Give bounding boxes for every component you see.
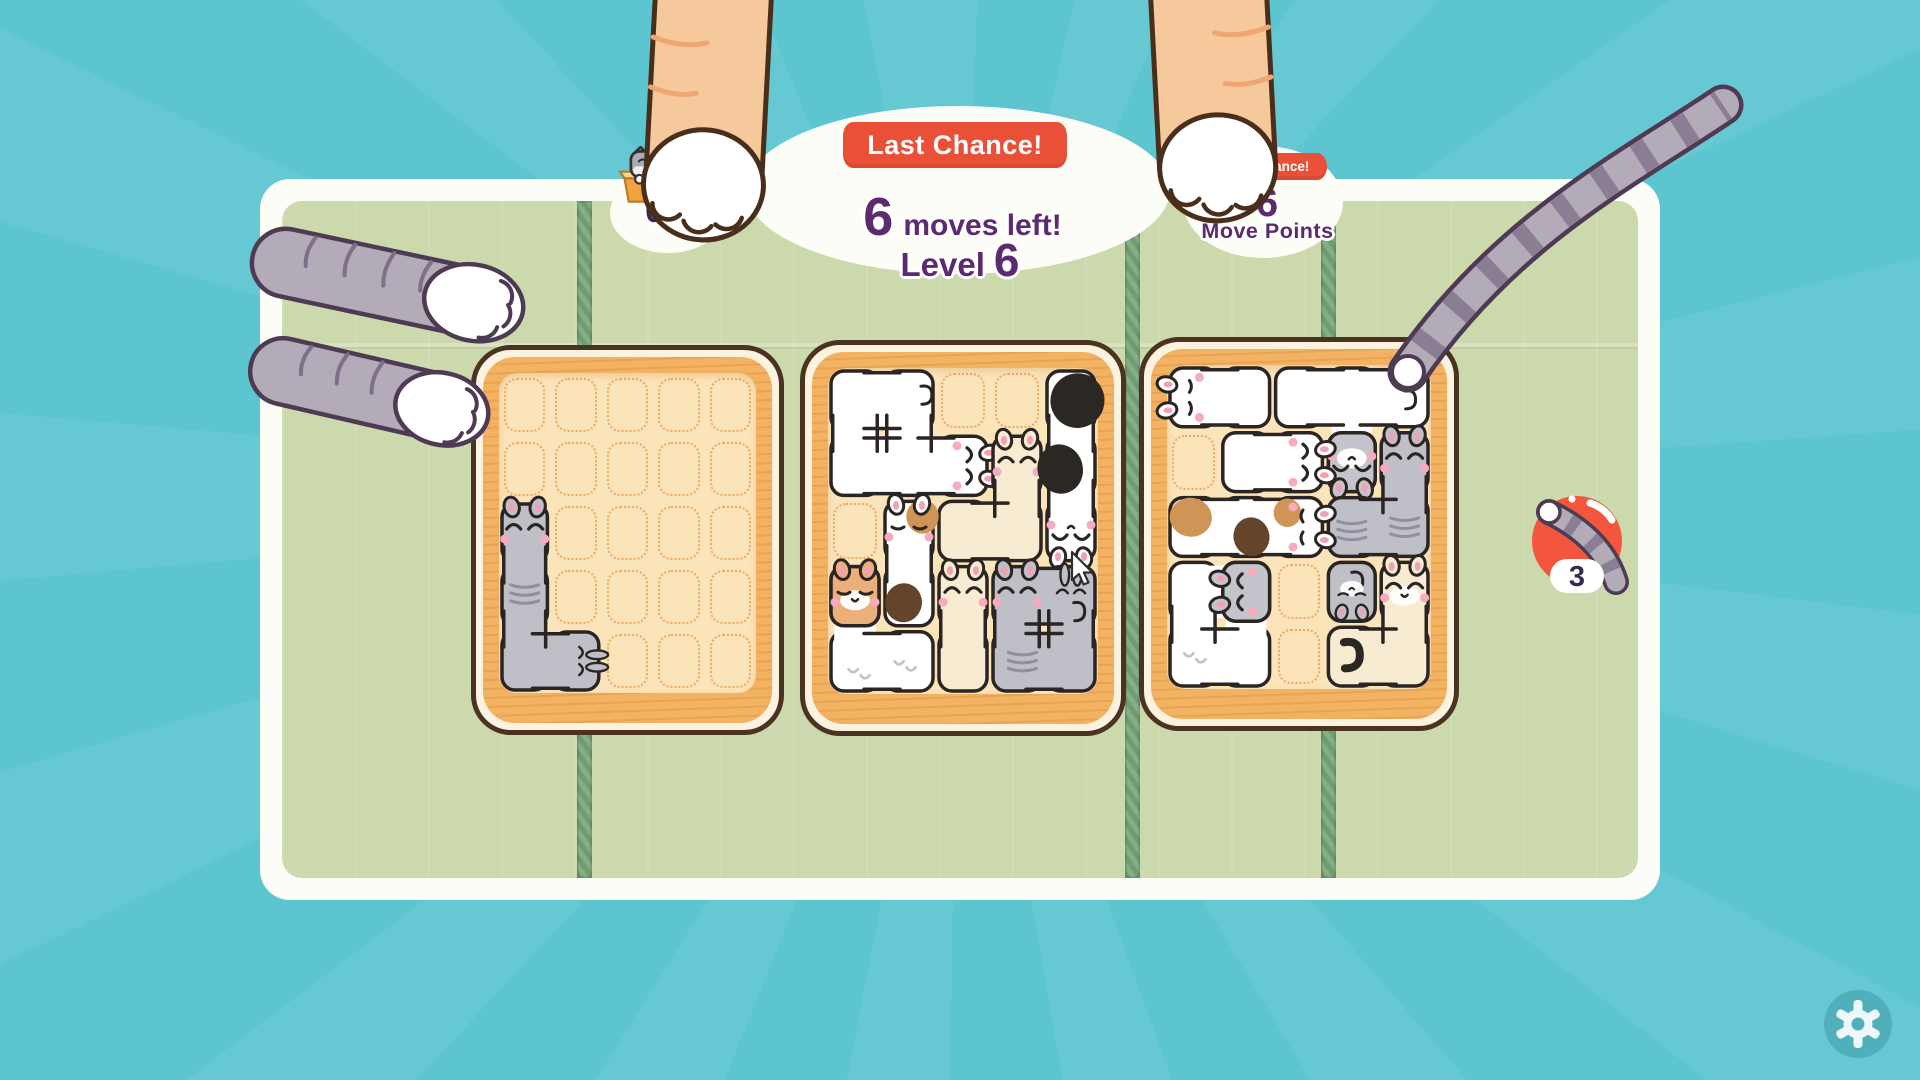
cat-piece-gray-twin-cats[interactable] bbox=[993, 558, 1096, 691]
pieces-layer bbox=[1167, 365, 1431, 689]
basket-middle[interactable] bbox=[800, 340, 1126, 736]
settings-button[interactable] bbox=[1824, 990, 1892, 1058]
last-chance-banner: Last Chance! bbox=[843, 122, 1067, 168]
cat-piece-gray-kitten[interactable] bbox=[1328, 562, 1375, 621]
cat-piece-white-loaf-cat[interactable] bbox=[1155, 368, 1269, 427]
move-points-label: Move Points bbox=[1180, 221, 1355, 243]
level-number: 6 bbox=[994, 237, 1020, 283]
level-label: Level bbox=[901, 248, 985, 281]
moves-left-number: 6 bbox=[863, 190, 893, 244]
last-chance-banner-right: Last Chance! bbox=[1207, 153, 1327, 180]
booster-tail-tip bbox=[1538, 501, 1560, 523]
game-stage: 0/4 Last Chance! 6 moves left! Level 6 L… bbox=[0, 0, 1920, 1080]
basket-right[interactable] bbox=[1139, 337, 1459, 731]
basket-rim bbox=[1151, 349, 1447, 719]
cat-piece-cream-tall-cat[interactable] bbox=[939, 558, 988, 691]
cat-piece-calico-cat[interactable] bbox=[882, 493, 939, 626]
cat-piece-white-round-cat[interactable] bbox=[1170, 562, 1270, 686]
moves-left-indicator: 6 moves left! bbox=[820, 190, 1105, 244]
cat-piece-calico-long-cat[interactable] bbox=[1167, 495, 1337, 559]
basket-left[interactable] bbox=[471, 345, 784, 735]
tatami-seam bbox=[1125, 201, 1140, 878]
basket-interior bbox=[499, 373, 756, 693]
cat-piece-cow-cat[interactable] bbox=[1032, 366, 1112, 569]
basket-interior bbox=[828, 368, 1098, 694]
basket-rim bbox=[483, 357, 772, 723]
cat-piece-gray-l-cat[interactable] bbox=[500, 495, 608, 690]
booster-count: 3 bbox=[1569, 561, 1585, 593]
pieces-layer bbox=[828, 368, 1098, 694]
cat-piece-white-big-cat[interactable] bbox=[831, 371, 1001, 495]
boxed-cats-counter: 0/4 bbox=[625, 194, 711, 227]
move-points-number: 6 bbox=[1227, 183, 1307, 223]
basket-rim bbox=[812, 352, 1114, 724]
level-indicator: Level 6 bbox=[830, 237, 1090, 283]
basket-interior bbox=[1167, 365, 1431, 689]
cat-piece-white-mini-cat[interactable] bbox=[1223, 433, 1337, 492]
last-chance-banner-label: Last Chance! bbox=[867, 130, 1043, 161]
pieces-layer bbox=[499, 373, 756, 693]
last-chance-banner-right-label: Last Chance! bbox=[1225, 159, 1310, 174]
